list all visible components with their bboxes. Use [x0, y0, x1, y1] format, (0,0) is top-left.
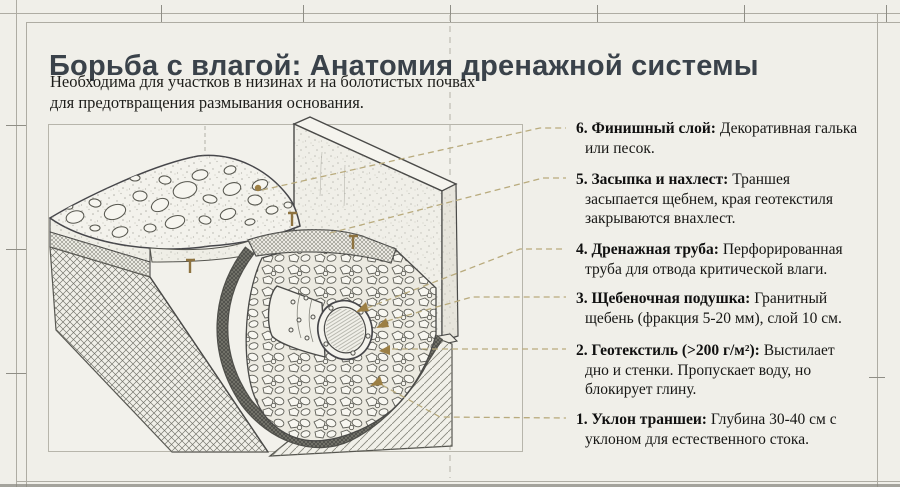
legend-text-2: 2. Геотекстиль (>200 г/м²): Выстилает дн…: [576, 341, 860, 400]
legend-item-1: 1. Уклон траншеи: Глубина 30-40 см с укл…: [576, 410, 860, 449]
legend-term-6: 6. Финишный слой:: [576, 120, 716, 137]
legend-term-3: 3. Щебеночная подушка:: [576, 290, 750, 307]
callout-dot-finish-layer: [255, 185, 261, 191]
legend-text-1: 1. Уклон траншеи: Глубина 30-40 см с укл…: [576, 410, 860, 449]
legend-item-2: 2. Геотекстиль (>200 г/м²): Выстилает дн…: [576, 341, 860, 400]
legend-text-5: 5. Засыпка и нахлест: Траншея засыпается…: [576, 170, 860, 229]
legend-term-4: 4. Дренажная труба:: [576, 241, 719, 258]
legend-term-2: 2. Геотекстиль (>200 г/м²):: [576, 342, 760, 359]
legend-term-1: 1. Уклон траншеи:: [576, 411, 707, 428]
legend-text-6: 6. Финишный слой: Декоративная галька ил…: [576, 119, 860, 158]
legend-text-3: 3. Щебеночная подушка: Гранитный щебень …: [576, 289, 860, 328]
legend-item-4: 4. Дренажная труба: Перфорированная труб…: [576, 240, 860, 279]
subtitle-line-1: Необходима для участков в низинах и на б…: [50, 72, 475, 91]
legend-text-4: 4. Дренажная труба: Перфорированная труб…: [576, 240, 860, 279]
legend-item-3: 3. Щебеночная подушка: Гранитный щебень …: [576, 289, 860, 328]
page-subtitle: Необходима для участков в низинах и на б…: [50, 71, 475, 113]
infographic-page: { "header": { "title": "Борьба с влагой:…: [0, 0, 900, 487]
subtitle-line-2: для предотвращения размывания основания.: [50, 93, 364, 112]
legend-term-5: 5. Засыпка и нахлест:: [576, 171, 728, 188]
legend-item-6: 6. Финишный слой: Декоративная галька ил…: [576, 119, 860, 158]
legend-item-5: 5. Засыпка и нахлест: Траншея засыпается…: [576, 170, 860, 229]
